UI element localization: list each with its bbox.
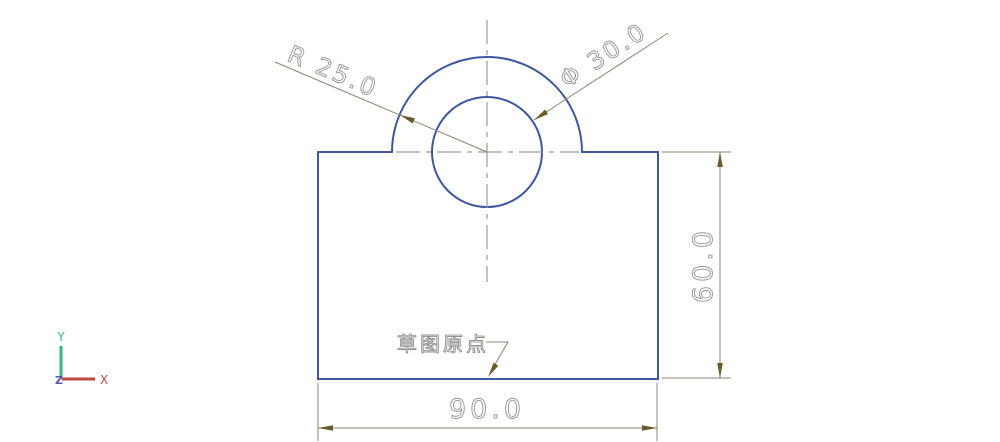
cad-drawing-canvas: 90.0 60.0 R 25.0 Φ 30.0 草图原点 xyxy=(0,0,1000,442)
width-arrow-left-icon xyxy=(318,425,333,431)
diameter-arrow-icon xyxy=(532,109,548,122)
cad-drawing-viewport: 90.0 60.0 R 25.0 Φ 30.0 草图原点 xyxy=(0,0,1000,442)
width-dimension: 90.0 xyxy=(318,383,657,441)
width-arrow-right-icon xyxy=(642,425,657,431)
sketch-origin-annotation: 草图原点 xyxy=(397,332,508,378)
height-arrow-bottom-icon xyxy=(717,363,723,378)
height-dimension-label: 60.0 xyxy=(688,227,719,303)
y-axis-label: Y xyxy=(56,330,65,344)
diameter-dimension: Φ 30.0 xyxy=(532,17,668,122)
diameter-dimension-label: Φ 30.0 xyxy=(555,17,652,94)
origin-arrow-icon xyxy=(486,363,499,379)
radius-dimension: R 25.0 xyxy=(275,40,487,152)
part-outline xyxy=(318,57,658,379)
origin-leader-line xyxy=(486,342,508,373)
origin-annotation-label: 草图原点 xyxy=(397,332,489,356)
radius-dimension-label: R 25.0 xyxy=(284,40,383,103)
height-arrow-top-icon xyxy=(717,152,723,167)
x-axis-label: X xyxy=(100,373,108,387)
height-dimension: 60.0 xyxy=(662,152,731,378)
z-axis-label: Z xyxy=(55,374,63,387)
radius-arrow-icon xyxy=(399,112,415,123)
coordinate-triad: Y X Z xyxy=(55,330,108,387)
width-dimension-label: 90.0 xyxy=(449,394,525,425)
